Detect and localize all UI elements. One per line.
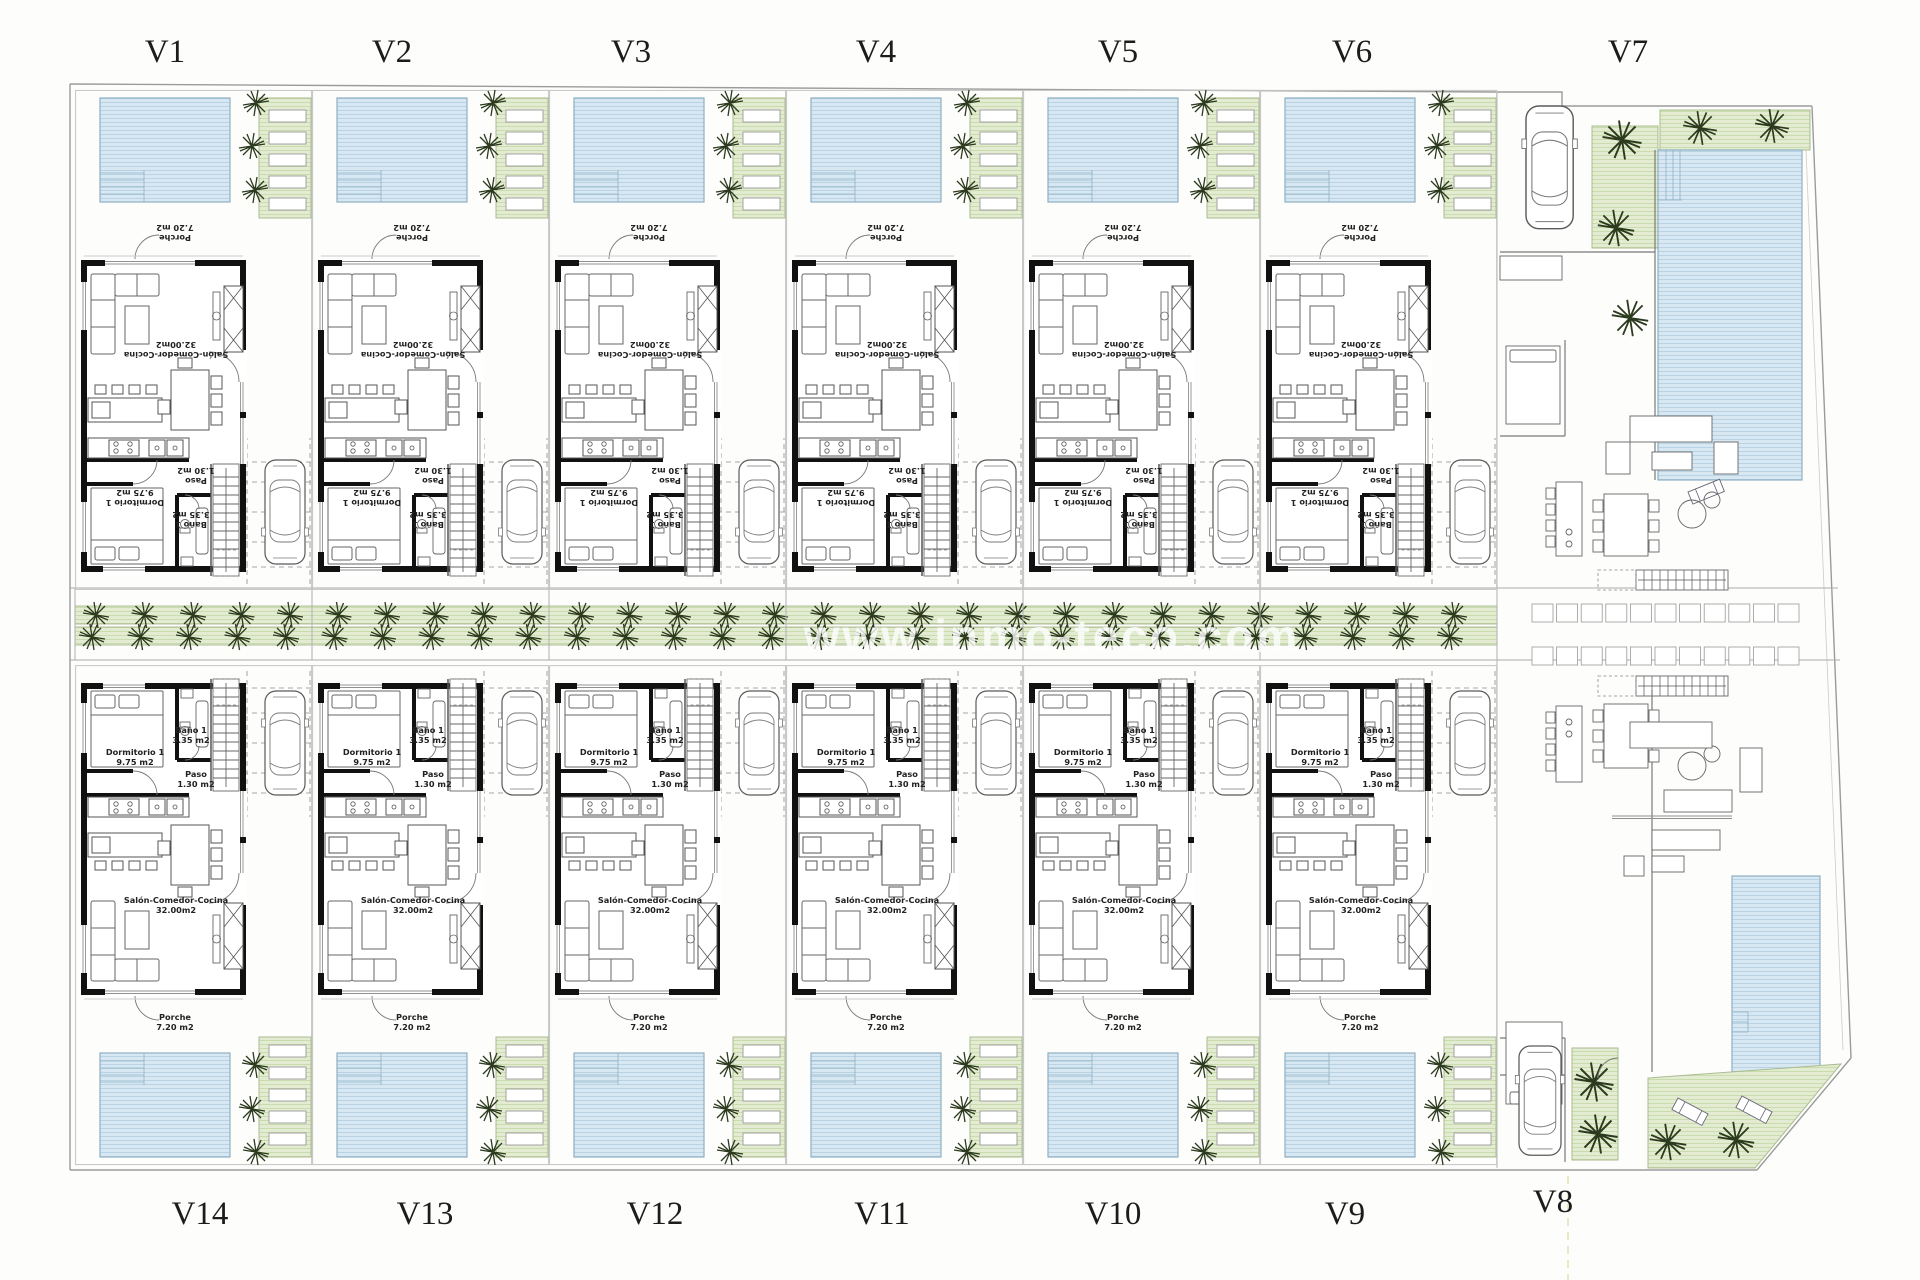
room-name: Salón-Comedor-Cocina [361,350,465,360]
plot-label-v6: V6 [1332,34,1372,70]
room-area: 1.30 m2 [414,779,451,789]
room-label-bano: Baño 13.35 m2 [409,510,446,530]
room-name: Paso [659,476,681,486]
room-area: 3.35 m2 [1120,735,1157,745]
room-name: Porche [1107,233,1139,243]
room-name: Porche [870,233,902,243]
paver [1704,604,1725,622]
room-name: Salón-Comedor-Cocina [598,350,702,360]
paver [1680,604,1701,622]
room-name: Porche [870,1012,902,1022]
room-label-porche: Porche7.20 m2 [156,223,193,243]
room-area: 9.75 m2 [590,757,627,767]
paver [1630,647,1651,665]
room-area: 3.35 m2 [883,735,920,745]
paver [1630,604,1651,622]
room-area: 7.20 m2 [1104,223,1141,233]
room-name: Porche [159,1012,191,1022]
plot-label-v5: V5 [1098,34,1138,70]
paver [1704,647,1725,665]
plot-label-v11: V11 [854,1196,910,1232]
room-label-bano: Baño 13.35 m2 [409,725,446,745]
room-area: 3.35 m2 [409,510,446,520]
unit-plan-v7 [1500,106,1810,590]
room-area: 32.00m2 [393,905,433,915]
plot-label-v14: V14 [172,1196,229,1232]
room-area: 1.30 m2 [177,466,214,476]
room-name: Baño 1 [412,725,444,735]
room-area: 3.35 m2 [646,510,683,520]
room-area: 7.20 m2 [867,223,904,233]
site-plan-canvas: Dormitorio 19.75 m2Dormitorio 19.75 m2Ba… [0,0,1920,1280]
room-area: 3.35 m2 [646,735,683,745]
room-name: Salón-Comedor-Cocina [1072,350,1176,360]
room-name: Baño 1 [649,725,681,735]
room-label-porche: Porche7.20 m2 [393,223,430,243]
room-name: Dormitorio 1 [1291,498,1350,508]
room-name: Paso [659,769,681,779]
room-name: Porche [159,233,191,243]
room-name: Porche [1344,1012,1376,1022]
room-area: 9.75 m2 [1064,757,1101,767]
room-label-bano: Baño 13.35 m2 [883,510,920,530]
room-area: 9.75 m2 [827,488,864,498]
room-name: Baño 1 [412,520,444,530]
paver [1557,647,1578,665]
room-label-porche: Porche7.20 m2 [630,223,667,243]
room-area: 3.35 m2 [409,735,446,745]
paver [1581,604,1602,622]
room-name: Porche [633,233,665,243]
plot-label-v3: V3 [611,34,651,70]
room-area: 9.75 m2 [116,488,153,498]
room-area: 32.00m2 [393,340,433,350]
room-area: 7.20 m2 [156,223,193,233]
room-label-bano: Baño 13.35 m2 [1120,510,1157,530]
room-name: Baño 1 [1123,725,1155,735]
room-name: Paso [1133,769,1155,779]
room-area: 7.20 m2 [1341,223,1378,233]
room-area: 9.75 m2 [590,488,627,498]
paver [1532,647,1553,665]
room-name: Dormitorio 1 [1291,747,1350,757]
paver [1532,604,1553,622]
paver [1778,647,1799,665]
room-area: 1.30 m2 [177,779,214,789]
room-name: Dormitorio 1 [580,498,639,508]
room-label-porche: Porche7.20 m2 [1104,223,1141,243]
room-label-bano: Baño 13.35 m2 [646,725,683,745]
room-name: Baño 1 [175,520,207,530]
room-area: 9.75 m2 [116,757,153,767]
room-name: Dormitorio 1 [817,747,876,757]
room-name: Salón-Comedor-Cocina [124,350,228,360]
garden-terrace [1648,1064,1841,1168]
paver [1680,647,1701,665]
room-area: 7.20 m2 [393,223,430,233]
paver [1655,604,1676,622]
room-name: Dormitorio 1 [1054,498,1113,508]
room-area: 32.00m2 [156,905,196,915]
room-area: 7.20 m2 [1341,1022,1378,1032]
room-name: Salón-Comedor-Cocina [1309,350,1413,360]
room-name: Baño 1 [1360,725,1392,735]
room-label-porche: Porche7.20 m2 [1341,223,1378,243]
room-name: Baño 1 [886,520,918,530]
room-name: Dormitorio 1 [1054,747,1113,757]
paver [1729,604,1750,622]
room-area: 7.20 m2 [867,1022,904,1032]
room-name: Salón-Comedor-Cocina [124,895,228,905]
paver [1581,647,1602,665]
room-area: 32.00m2 [1104,905,1144,915]
room-name: Paso [185,769,207,779]
room-area: 32.00m2 [630,905,670,915]
furniture [1506,704,1762,1104]
room-label-porche: Porche7.20 m2 [1341,1012,1378,1032]
room-area: 7.20 m2 [630,1022,667,1032]
room-name: Paso [422,476,444,486]
watermark: www.inmo-teco.com [803,610,1301,662]
room-name: Dormitorio 1 [817,498,876,508]
room-area: 32.00m2 [1341,905,1381,915]
room-area: 32.00m2 [1104,340,1144,350]
room-label-bano: Baño 13.35 m2 [646,510,683,530]
room-name: Porche [396,1012,428,1022]
villa-units-top [76,90,1497,589]
room-name: Salón-Comedor-Cocina [1309,895,1413,905]
room-name: Porche [633,1012,665,1022]
room-area: 7.20 m2 [1104,1022,1141,1032]
room-area: 1.30 m2 [651,466,688,476]
room-area: 1.30 m2 [1125,779,1162,789]
room-area: 9.75 m2 [1064,488,1101,498]
room-area: 3.35 m2 [1357,735,1394,745]
room-area: 3.35 m2 [172,510,209,520]
villa-units-bottom [76,666,1497,1165]
room-label-porche: Porche7.20 m2 [1104,1012,1141,1032]
plot-label-v7: V7 [1608,34,1648,70]
plot-label-v1: V1 [145,34,185,70]
room-area: 32.00m2 [867,905,907,915]
room-name: Salón-Comedor-Cocina [598,895,702,905]
plot-label-v8: V8 [1533,1184,1573,1220]
room-name: Paso [1370,769,1392,779]
room-label-bano: Baño 13.35 m2 [1357,725,1394,745]
room-area: 1.30 m2 [1125,466,1162,476]
room-area: 3.35 m2 [883,510,920,520]
room-area: 1.30 m2 [651,779,688,789]
room-area: 9.75 m2 [1301,488,1338,498]
room-name: Porche [1107,1012,1139,1022]
room-name: Dormitorio 1 [106,498,165,508]
room-area: 7.20 m2 [630,223,667,233]
room-area: 9.75 m2 [827,757,864,767]
room-label-porche: Porche7.20 m2 [630,1012,667,1032]
room-name: Salón-Comedor-Cocina [835,895,939,905]
room-label-porche: Porche7.20 m2 [156,1012,193,1032]
room-area: 9.75 m2 [1301,757,1338,767]
room-label-porche: Porche7.20 m2 [867,1012,904,1032]
paver [1557,604,1578,622]
room-area: 32.00m2 [867,340,907,350]
room-area: 32.00m2 [630,340,670,350]
room-area: 3.35 m2 [1120,510,1157,520]
site-plan-svg: Dormitorio 19.75 m2Dormitorio 19.75 m2Ba… [0,0,1920,1280]
pool [1732,876,1820,1072]
room-label-bano: Baño 13.35 m2 [1120,725,1157,745]
room-name: Dormitorio 1 [580,747,639,757]
room-name: Paso [422,769,444,779]
room-name: Dormitorio 1 [343,498,402,508]
room-name: Baño 1 [649,520,681,530]
room-label-bano: Baño 13.35 m2 [172,725,209,745]
paver [1655,647,1676,665]
paver [1753,647,1774,665]
room-area: 1.30 m2 [888,779,925,789]
room-area: 1.30 m2 [888,466,925,476]
room-name: Baño 1 [175,725,207,735]
paver [1606,604,1627,622]
room-name: Baño 1 [1360,520,1392,530]
room-area: 3.35 m2 [1357,510,1394,520]
room-name: Dormitorio 1 [106,747,165,757]
room-name: Salón-Comedor-Cocina [1072,895,1176,905]
room-area: 9.75 m2 [353,757,390,767]
paver [1606,647,1627,665]
room-label-bano: Baño 13.35 m2 [1357,510,1394,530]
paver [1753,604,1774,622]
room-name: Paso [1133,476,1155,486]
room-name: Paso [185,476,207,486]
room-name: Paso [896,476,918,486]
room-name: Porche [396,233,428,243]
room-area: 9.75 m2 [353,488,390,498]
room-area: 32.00m2 [1341,340,1381,350]
room-area: 1.30 m2 [414,466,451,476]
room-name: Dormitorio 1 [343,747,402,757]
room-label-bano: Baño 13.35 m2 [883,725,920,745]
room-name: Salón-Comedor-Cocina [835,350,939,360]
room-area: 1.30 m2 [1362,466,1399,476]
plot-label-v13: V13 [397,1196,454,1232]
paver [1778,604,1799,622]
room-area: 7.20 m2 [393,1022,430,1032]
plot-label-v12: V12 [627,1196,684,1232]
room-name: Baño 1 [1123,520,1155,530]
room-area: 7.20 m2 [156,1022,193,1032]
room-label-porche: Porche7.20 m2 [393,1012,430,1032]
paver [1729,647,1750,665]
room-label-porche: Porche7.20 m2 [867,223,904,243]
room-area: 1.30 m2 [1362,779,1399,789]
room-area: 3.35 m2 [172,735,209,745]
room-name: Porche [1344,233,1376,243]
plot-label-v10: V10 [1085,1196,1142,1232]
room-name: Paso [896,769,918,779]
plot-label-v2: V2 [372,34,412,70]
room-label-bano: Baño 13.35 m2 [172,510,209,530]
room-name: Paso [1370,476,1392,486]
room-area: 32.00m2 [156,340,196,350]
room-name: Salón-Comedor-Cocina [361,895,465,905]
room-name: Baño 1 [886,725,918,735]
plot-label-v9: V9 [1325,1196,1365,1232]
plot-label-v4: V4 [856,34,896,70]
